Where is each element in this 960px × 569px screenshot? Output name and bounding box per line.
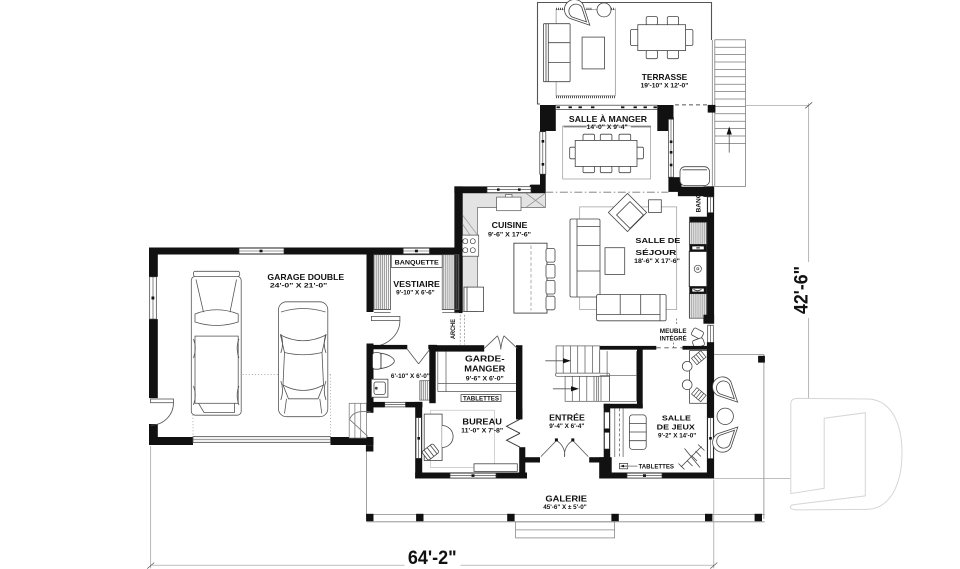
svg-text:TABLETTES: TABLETTES [463,396,499,403]
svg-text:ARCHE: ARCHE [450,319,457,339]
svg-text:18'-6" X 17'-6": 18'-6" X 17'-6" [634,258,680,265]
svg-text:9'-4" X 6'-4": 9'-4" X 6'-4" [549,423,584,430]
svg-text:CUISINE: CUISINE [492,220,528,230]
svg-text:6'-10" X 6'-0": 6'-10" X 6'-0" [391,373,430,380]
svg-text:ENTRÉE: ENTRÉE [549,412,585,422]
svg-text:BUREAU: BUREAU [462,416,502,426]
svg-text:45'-6" X ± 5'-0": 45'-6" X ± 5'-0" [543,504,586,511]
svg-text:SÉJOUR: SÉJOUR [635,248,677,257]
svg-text:VESTIAIRE: VESTIAIRE [393,279,440,289]
svg-text:42'-6": 42'-6" [791,266,813,314]
svg-text:11'-0" X 7'-8": 11'-0" X 7'-8" [461,427,503,434]
svg-text:GARAGE DOUBLE: GARAGE DOUBLE [267,272,344,282]
svg-text:TERRASSE: TERRASSE [642,72,688,82]
svg-text:MANGER: MANGER [464,364,505,374]
svg-text:GALERIE: GALERIE [545,494,587,504]
svg-text:9'-2" X 14'-0": 9'-2" X 14'-0" [658,433,696,440]
svg-text:BANC: BANC [695,193,702,213]
svg-text:24'-0" X 21'-0": 24'-0" X 21'-0" [270,282,327,289]
svg-text:9'-6" X 17'-6": 9'-6" X 17'-6" [488,231,531,238]
svg-text:BANQUETTE: BANQUETTE [395,259,439,266]
svg-text:MEUBLE: MEUBLE [660,328,687,335]
svg-text:9'-6" X 6'-0": 9'-6" X 6'-0" [466,375,504,382]
svg-text:SALLE À MANGER: SALLE À MANGER [569,114,647,124]
svg-text:GARDE-: GARDE- [465,354,505,364]
svg-text:64'-2": 64'-2" [408,547,457,569]
svg-text:9'-10" X 6'-6": 9'-10" X 6'-6" [396,290,435,297]
svg-text:19'-10" X 12'-0": 19'-10" X 12'-0" [641,82,689,89]
svg-text:INTÉGRÉ: INTÉGRÉ [660,334,687,342]
svg-text:DE JEUX: DE JEUX [657,423,695,432]
svg-text:TABLETTES: TABLETTES [639,464,675,471]
svg-text:14'-0" X 9'-4": 14'-0" X 9'-4" [587,124,628,131]
svg-text:SALLE: SALLE [662,413,691,422]
svg-text:SALLE DE: SALLE DE [635,236,680,245]
